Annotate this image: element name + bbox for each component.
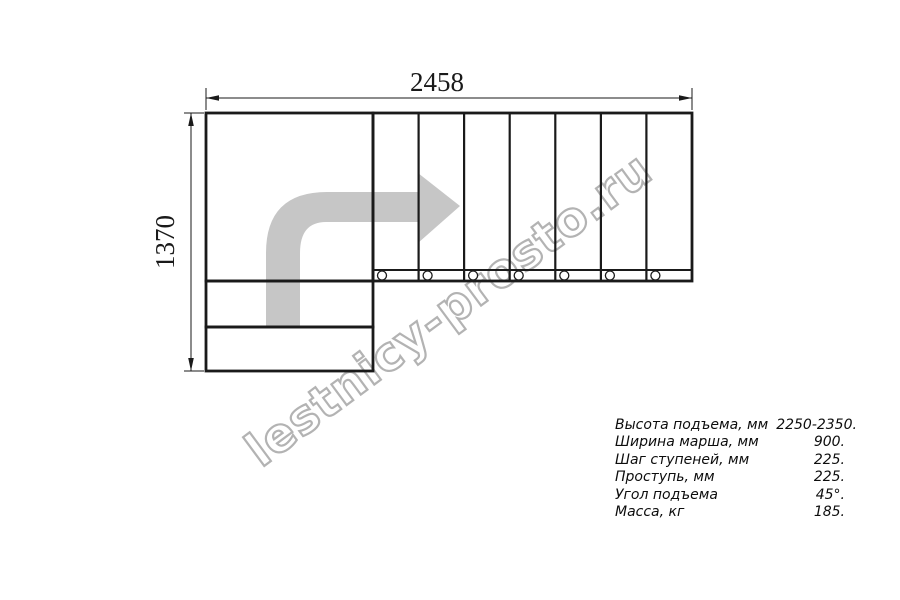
fastener-circle xyxy=(469,271,478,280)
spec-label: Масса, кг xyxy=(615,504,684,521)
spec-row-tread: Проступь, мм 225. xyxy=(615,469,845,486)
landing-outline xyxy=(206,113,373,281)
dim-arrowhead-right xyxy=(679,95,692,101)
fastener-circle xyxy=(560,271,569,280)
dim-arrowhead-bottom xyxy=(188,358,194,371)
spec-label: Ширина марша, мм xyxy=(615,434,759,451)
fastener-circle xyxy=(378,271,387,280)
dim-arrowhead-top xyxy=(188,113,194,126)
fastener-circle xyxy=(514,271,523,280)
spec-value: 2250-2350. xyxy=(768,417,857,434)
spec-label: Проступь, мм xyxy=(615,469,715,486)
spec-label: Угол подъема xyxy=(615,487,718,504)
flight-outline xyxy=(373,113,692,281)
spec-row-height: Высота подъема, мм 2250-2350. xyxy=(615,417,845,434)
spec-row-angle: Угол подъема 45°. xyxy=(615,487,845,504)
spec-table: Высота подъема, мм 2250-2350. Ширина мар… xyxy=(615,417,845,521)
dim-arrowhead-left xyxy=(206,95,219,101)
spec-value: 185. xyxy=(806,504,845,521)
spec-value: 225. xyxy=(806,469,845,486)
dimension-width-label: 2458 xyxy=(410,67,464,97)
lower-step-1 xyxy=(206,281,373,327)
spec-label: Высота подъема, мм xyxy=(615,417,768,434)
spec-value: 900. xyxy=(806,434,845,451)
spec-label: Шаг ступеней, мм xyxy=(615,452,749,469)
lower-step-2 xyxy=(206,327,373,371)
spec-row-mass: Масса, кг 185. xyxy=(615,504,845,521)
spec-row-march-width: Ширина марша, мм 900. xyxy=(615,434,845,451)
spec-value: 225. xyxy=(806,452,845,469)
fastener-circle xyxy=(605,271,614,280)
spec-row-step-pitch: Шаг ступеней, мм 225. xyxy=(615,452,845,469)
spec-value: 45°. xyxy=(808,487,845,504)
fastener-circle xyxy=(423,271,432,280)
fastener-circle xyxy=(651,271,660,280)
technical-drawing-canvas: lestnicy-prosto.ru 2458 xyxy=(0,0,900,600)
dimension-height-label: 1370 xyxy=(150,215,180,269)
